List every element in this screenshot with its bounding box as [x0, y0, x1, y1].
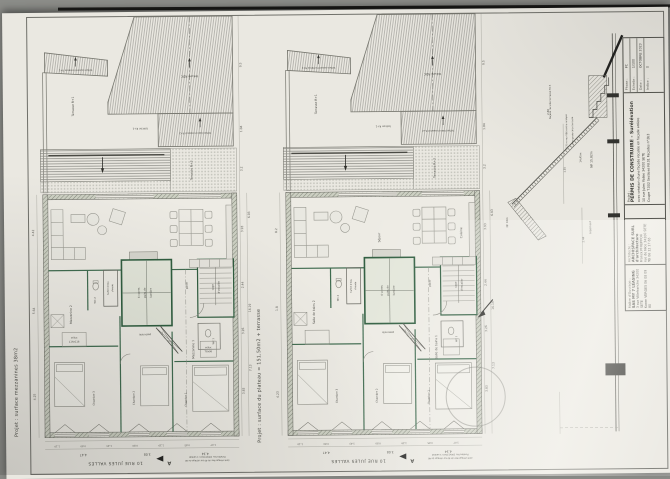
light-shaft: 4 verres puits de lumière [121, 252, 172, 326]
dim-left-2: 4.23 [276, 391, 280, 398]
dim-left-0: 4.42 [31, 229, 35, 236]
label-ballon-2: chaude [111, 283, 114, 292]
dim-left-1: 5.64 [32, 307, 36, 314]
label-shaft-1: 4 verres [137, 287, 141, 298]
label-logement: Logement [588, 221, 592, 234]
dim-bottom-3: 0.80 [375, 442, 381, 445]
roof-label-balcon: balcon R+1 [132, 127, 147, 131]
dim-bottom-5: 0.85 [184, 443, 190, 446]
label-shaft-3: lumière [149, 287, 153, 297]
dim-total-0: 4.47 [323, 451, 330, 455]
level-nf18: NF 18m [505, 217, 509, 228]
dim-left-2: 4.25 [33, 393, 37, 400]
label-shaft-3: lumière [392, 285, 396, 295]
drawing-sheet: toiture auvent terrasse R+1 Terrasse R+1… [2, 7, 670, 479]
label-mid-right: Salle de bains 1 [434, 335, 438, 359]
sloped-facade [511, 117, 600, 207]
section-structure [506, 33, 626, 434]
dining-table-icon [170, 209, 212, 246]
dim-bottom-2: 1.43 [349, 442, 355, 445]
dim-1445: 14,45m [578, 152, 582, 162]
dim-total-0: 4.47 [80, 453, 87, 457]
title-block-architect: Architecte : ARCHISPACE SURL d'architect… [625, 218, 665, 264]
dim-bottom-1: 0.80 [323, 442, 329, 445]
architect-phone: Tél 06 12 17 65 [647, 221, 651, 262]
bed-icon [297, 360, 327, 404]
label-shaft-2: puits de [143, 287, 147, 298]
label-palier: palier [185, 281, 189, 289]
label-cage-2: d'escalier [460, 278, 464, 291]
label-garde-corps: L. lien garde corps terrasse [571, 116, 574, 147]
terrace-band: Terrasse R+3 [40, 148, 236, 193]
label-cage-1: cage [212, 284, 215, 291]
window-note-1: Fenêtre feu 100x150cm 1 vantail [432, 453, 469, 456]
dim-right-8: 7.13 [248, 364, 252, 371]
label-mid-right: Mezzanine 1 [191, 340, 195, 359]
label-wc2: WC 2 [94, 297, 97, 304]
terrace-band: Terrasse R+3 [283, 146, 479, 191]
dim-right-2: 3.2 [482, 164, 486, 169]
label-mid-right-sub1: vélux [205, 346, 212, 349]
level-nf1582: NF 15,82m [589, 151, 593, 168]
label-palier: palier [428, 278, 432, 286]
dim-bottom-1: 0.80 [80, 444, 86, 447]
label-chambre1: Chambre 1 [184, 392, 188, 407]
window-note-2: dont vitrage fixe de 40 sur vitrage de 4… [184, 459, 229, 462]
dim-right-7: 3.26 [484, 325, 488, 332]
label-shaft-1: 4 verres [380, 285, 384, 296]
dim-total-2: 4.34 [445, 449, 452, 453]
sloped-slab [508, 198, 546, 240]
label-terrasse-r3: Terrasse R+3 [432, 158, 436, 179]
label-terrasse-r3: Terrasse R+3 [189, 160, 193, 181]
label-passerelle: passerelle [381, 330, 394, 333]
bed-icon [383, 363, 411, 403]
label-cage-1: cage [455, 281, 458, 288]
window-note-2: dont vitrage fixe de 40 sur vitrage de 4… [427, 456, 472, 459]
north-arrow-icon [475, 296, 497, 320]
floor-plan-a: toiture auvent terrasse R+1 Terrasse R+1… [25, 13, 258, 467]
dim-right-9: 3.83 [242, 387, 246, 394]
label-shaft-2: puits de [386, 285, 390, 296]
dim-right-2: 3.2 [239, 166, 243, 171]
dim-bottom-5: 0.85 [427, 441, 433, 444]
index-label: Indice : [646, 68, 650, 90]
bed-icon [140, 366, 168, 406]
label-chambre3: Chambre 3 [92, 391, 96, 406]
label-mid-left: Mezzanine 2 [69, 305, 73, 324]
roof-label-terrasse-r1: Terrasse R+1 [71, 96, 75, 117]
dim-total-2: 4.34 [202, 452, 209, 456]
dim-left-1: 1.8 [275, 306, 279, 311]
dim-right-5: 2.44 [484, 279, 488, 286]
dim-bottom-0: 1.10 [54, 445, 60, 448]
dim-bottom-4: 1.29 [401, 441, 407, 444]
phase-label: Phase : [625, 68, 629, 90]
section-marker-letter: A [167, 460, 171, 466]
dim-bottom-6: 1.07 [210, 443, 216, 446]
label-mid-left-sub2: 114x118 [69, 340, 80, 343]
label-cuisine: Cuisine [459, 227, 463, 238]
dim-bottom-4: 1.29 [158, 444, 164, 447]
dim-bottom-3: 0.80 [132, 444, 138, 447]
label-mid-left-sub1: vélux [71, 336, 78, 339]
title-block-spacer [625, 204, 665, 218]
index-value: 0 [646, 66, 650, 68]
street-label: 10 RUE JULES VALLES [88, 461, 143, 467]
title-block-project: Projet : PERMIS DE CONSTRUIRE - Suréléva… [624, 92, 665, 204]
dim-right-7: 3.26 [241, 327, 245, 334]
label-mur-mitoyen: (3,7) m mur R06 contre mitoyen [565, 113, 568, 149]
section-marker-letter: A [410, 457, 414, 463]
dining-table-icon [413, 207, 455, 244]
dim-right-0: 9.5 [238, 62, 242, 67]
dim-bottom-6: 1.07 [453, 441, 459, 444]
dim-right-1: 1.04 [482, 123, 486, 130]
roof-label-auvent: toiture auvent terrasse R+1 [58, 68, 92, 71]
scale-label: Echelle : [632, 68, 636, 90]
title-block-owner: Maître d'Ouvrage : SAS MY 7 LEASING 3 ru… [625, 264, 665, 310]
section-arrow-icon [399, 453, 406, 459]
light-shaft: 4 verres puits de lumière [364, 249, 415, 323]
dim-bottom-2: 1.43 [106, 444, 112, 447]
label-ballon-1: ballon d'eau [350, 279, 353, 293]
dim-244: 2.44 [581, 236, 585, 242]
roof-label-avancee: toiture balcon avancé R+2 [179, 131, 211, 134]
scanned-plan-photo: { "photo": { "bg": "#8b8c88", "paper": "… [0, 0, 670, 475]
label-chambre3: Chambre 3 [335, 388, 339, 403]
scale-value: 1/100 [631, 59, 635, 68]
dim-total-1: 3.08 [144, 452, 151, 456]
dim-right-1: 1.04 [239, 125, 243, 132]
dim-right-4: 3.93 [483, 223, 487, 230]
label-chambre2: Chambre 2 [375, 388, 379, 403]
date-value: OCTOBRE 2023 [638, 43, 642, 68]
circular-mark [445, 366, 506, 427]
dim-right-6: 16.19 [248, 303, 252, 312]
label-wc2: WC 2 [337, 294, 340, 301]
title-block: Maître d'Ouvrage : SAS MY 7 LEASING 3 ru… [622, 37, 667, 311]
dim-right-5: 2.44 [241, 281, 245, 288]
footing [605, 363, 625, 375]
bed-icon [54, 362, 84, 406]
project-sheets: Coupe T.002 Sections NI.01 Façades n°2b3 [646, 95, 651, 202]
dim-bottom-0: 1.10 [297, 442, 303, 445]
roof-label-avancee: toiture balcon avancé R+2 [422, 129, 454, 132]
section-marker: A [399, 453, 414, 463]
label-mid-right-sub2: 78x98 [205, 350, 213, 353]
roof-label-rdc: toiture RDC [424, 72, 441, 76]
section-labels: Façade reculée terrasse R+3 (3,7) m mur … [504, 84, 595, 243]
dim-right-4: 3.93 [240, 225, 244, 232]
roof-label-rdc: toiture RDC [181, 74, 198, 78]
dim-288: 2.88 [546, 109, 550, 115]
label-ballon-2: chaude [354, 281, 357, 290]
phase-value: PC [625, 64, 629, 68]
window-note-1: Fenêtre feu 100x150cm 1 vantail [189, 455, 226, 458]
roof-label-auvent: toiture auvent terrasse R+1 [301, 66, 335, 69]
title-block-meta: Phase : PC Echelle : 1/100 Date : OCTOBR… [623, 38, 664, 92]
label-mid-left: Salle de bains 2 [312, 300, 316, 324]
dim-101: 1.01 [564, 167, 567, 173]
label-chambre2: Chambre 2 [132, 390, 136, 405]
owner-contact: Karen VERGES 06 08 09 80 [643, 267, 651, 308]
stair-section [589, 75, 609, 117]
main-floor: 4 verres puits de lumière ballon d'eau c… [43, 193, 239, 438]
section-marker: A [156, 456, 171, 466]
plan-a-caption: Projet : surface mezzanines 38m2 [14, 348, 20, 438]
label-chambre1: Chambre 1 [427, 390, 431, 405]
dim-left-0: 8.2 [274, 228, 278, 233]
section-arrow-icon [156, 456, 163, 462]
roof-label-balcon: balcon R+1 [375, 124, 390, 128]
meta-index-row: Indice : 0 [644, 38, 651, 92]
dim-right-3: 6.93 [247, 211, 251, 218]
project-title: PERMIS DE CONSTRUIRE - Surélévation [630, 95, 636, 202]
label-passerelle: passerelle [138, 333, 151, 336]
dim-total-1: 3.08 [387, 450, 394, 454]
label-sejour: Séjour [377, 232, 381, 242]
date-label: Date : [639, 68, 643, 90]
label-ballon-1: ballon d'eau [107, 281, 110, 295]
label-cage-2: d'escalier [217, 280, 221, 293]
dim-right-0: 9.5 [481, 60, 485, 65]
bed-icon [192, 365, 228, 411]
roof-label-terrasse-r1: Terrasse R+1 [314, 94, 318, 115]
street-label: 10 RUE JULES VALLES [331, 459, 386, 465]
